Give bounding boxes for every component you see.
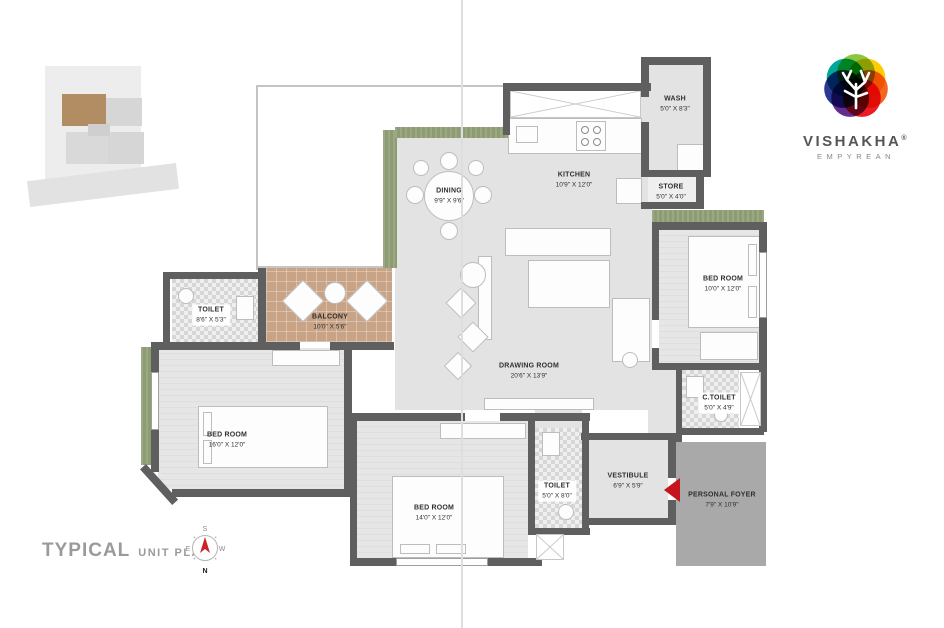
wall-segment bbox=[503, 83, 510, 135]
room-label-bedroom-topright: BED ROOM10'0" X 12'0" bbox=[703, 275, 743, 294]
plan-title-main: TYPICAL bbox=[42, 540, 130, 562]
wall-segment bbox=[641, 65, 649, 97]
sofa bbox=[505, 228, 611, 256]
room-label-bedroom-bottom: BED ROOM14'0" X 12'0" bbox=[414, 504, 454, 523]
wall-segment bbox=[668, 500, 676, 525]
window bbox=[151, 372, 159, 430]
room-label-toilet-bottom: TOILET5'0" X 8'0" bbox=[538, 481, 576, 502]
wall-segment bbox=[528, 413, 535, 535]
wall-segment bbox=[581, 433, 676, 440]
wall-segment bbox=[668, 440, 676, 478]
hob-icon bbox=[576, 121, 606, 151]
wall-segment bbox=[163, 272, 170, 344]
wc bbox=[236, 296, 254, 320]
wall-segment bbox=[258, 268, 266, 348]
logo-tree-icon bbox=[816, 52, 896, 126]
wall-segment bbox=[641, 202, 704, 209]
wall-segment bbox=[585, 518, 676, 525]
dining-chair bbox=[440, 222, 458, 240]
key-plan-building bbox=[66, 132, 108, 164]
wall-segment bbox=[652, 230, 659, 320]
key-plan-building bbox=[108, 132, 144, 164]
room-label-personal-foyer: PERSONAL FOYER7'9" X 10'9" bbox=[688, 491, 756, 510]
wall-segment bbox=[500, 413, 590, 421]
svg-text:S: S bbox=[203, 526, 208, 533]
terrace-line bbox=[256, 85, 506, 87]
wall-segment bbox=[172, 489, 352, 497]
dining-chair bbox=[413, 160, 429, 176]
dining-chair bbox=[440, 152, 458, 170]
sofa bbox=[528, 260, 610, 308]
wall-segment bbox=[165, 272, 265, 279]
room-label-vestibule: VESTIBULE6'9" X 5'9" bbox=[607, 472, 648, 491]
duct-shaft bbox=[740, 372, 761, 426]
wall-segment bbox=[703, 57, 711, 177]
rug bbox=[460, 262, 486, 288]
pillow bbox=[748, 286, 757, 318]
wall-segment bbox=[641, 170, 711, 177]
brand-name: VISHAKHA® bbox=[800, 133, 912, 150]
svg-text:W: W bbox=[219, 546, 226, 553]
wall-segment bbox=[350, 413, 465, 421]
wardrobe bbox=[440, 423, 526, 439]
key-plan-building bbox=[106, 98, 142, 126]
key-plan-building bbox=[88, 124, 110, 136]
washbasin bbox=[178, 288, 194, 304]
pillow bbox=[400, 544, 430, 554]
brochure-page: VISHAKHA® EMPYREAN bbox=[0, 0, 944, 628]
page-fold-line bbox=[461, 0, 463, 628]
room-label-drawing-room: DRAWING ROOM20'6" X 13'9" bbox=[499, 362, 559, 381]
pillow bbox=[748, 244, 757, 276]
room-label-bedroom-left: BED ROOM16'0" X 12'0" bbox=[207, 431, 247, 450]
window bbox=[396, 558, 488, 566]
floor-passage bbox=[648, 363, 676, 440]
kitchen-window bbox=[510, 90, 641, 118]
window bbox=[759, 252, 767, 318]
room-label-dining: DINING9'9" X 9'6" bbox=[434, 187, 464, 206]
kitchen-sink bbox=[516, 126, 538, 143]
room-label-balcony: BALCONY10'0" X 5'6" bbox=[312, 313, 348, 332]
dining-chair bbox=[474, 186, 492, 204]
wall-segment bbox=[330, 342, 394, 350]
duct-shaft bbox=[536, 534, 564, 560]
room-label-wash: WASH5'0" X 8'3" bbox=[660, 95, 690, 114]
wall-segment bbox=[676, 428, 764, 435]
washbasin bbox=[558, 504, 574, 520]
plant-pot bbox=[622, 352, 638, 368]
brand-tagline: EMPYREAN bbox=[800, 152, 912, 161]
wall-segment bbox=[696, 177, 704, 209]
washing-machine bbox=[677, 144, 704, 171]
planter-strip bbox=[395, 127, 517, 138]
room-label-kitchen: KITCHEN10'9" X 12'0" bbox=[556, 171, 593, 190]
terrace-line bbox=[256, 85, 258, 270]
balcony-table bbox=[324, 282, 346, 304]
wall-segment bbox=[641, 57, 711, 65]
room-label-store: STORE5'0" X 4'0" bbox=[656, 183, 686, 202]
wall-segment bbox=[503, 83, 651, 91]
planter-strip bbox=[383, 130, 397, 268]
room-label-toilet-topleft: TOILET8'6" X 5'3" bbox=[192, 305, 230, 326]
room-label-ctoilet: C.TOILET5'0" X 4'9" bbox=[698, 393, 739, 414]
wall-segment bbox=[155, 342, 300, 350]
console bbox=[484, 398, 594, 410]
wardrobe bbox=[272, 350, 340, 366]
brand-logo: VISHAKHA® EMPYREAN bbox=[800, 52, 912, 161]
wall-segment bbox=[652, 222, 766, 230]
svg-text:E: E bbox=[186, 546, 191, 553]
entry-door-marker bbox=[664, 478, 680, 502]
dining-chair bbox=[406, 186, 424, 204]
wall-segment bbox=[344, 342, 352, 492]
wall-segment bbox=[652, 363, 767, 370]
refrigerator bbox=[616, 178, 642, 204]
svg-text:N: N bbox=[202, 568, 207, 575]
key-plan-building-highlight bbox=[62, 94, 106, 126]
dining-chair bbox=[468, 160, 484, 176]
dresser bbox=[700, 332, 758, 360]
wc bbox=[542, 432, 560, 456]
wall-segment bbox=[641, 122, 649, 177]
planter-strip bbox=[652, 210, 764, 222]
key-plan bbox=[28, 60, 178, 205]
compass-rose: S E W N bbox=[182, 520, 228, 581]
